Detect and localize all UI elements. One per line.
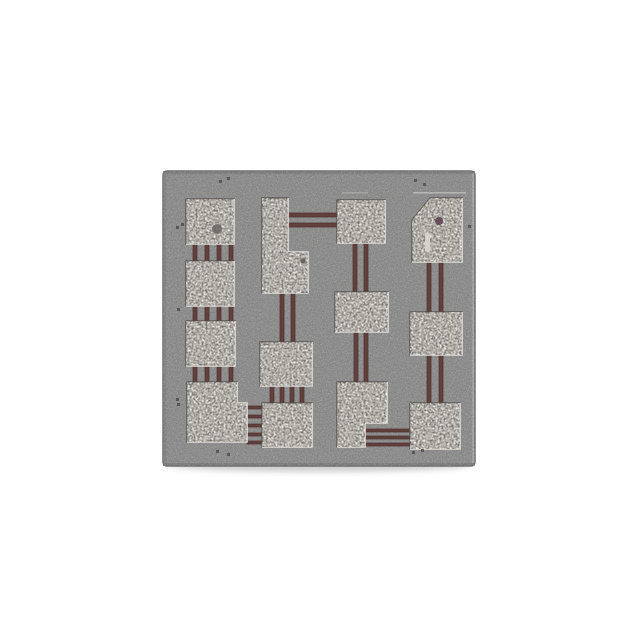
chip-photo xyxy=(0,0,640,640)
product-photo xyxy=(0,0,640,640)
